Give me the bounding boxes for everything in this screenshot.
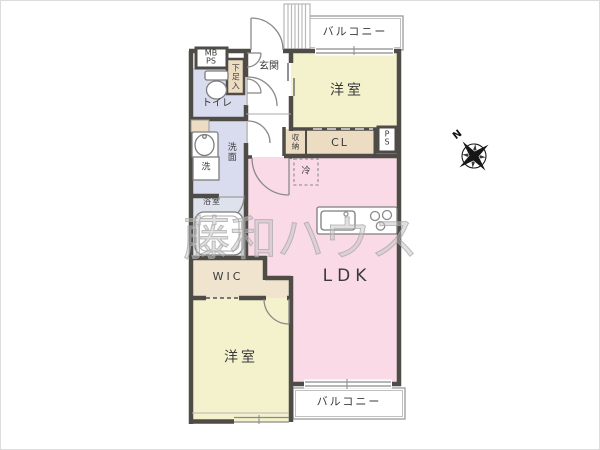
balcony-top-label: バルコニー [323, 26, 388, 38]
mbps-line2: PS [206, 57, 216, 66]
entrance-door [251, 18, 283, 50]
ps-label: P S [384, 131, 389, 148]
kitchen-sink [321, 211, 355, 230]
fridge-label: 冷 [301, 167, 310, 176]
toilet-fixture [205, 71, 228, 99]
compass-rose: N [439, 118, 503, 184]
genkan-label: 玄関 [259, 62, 279, 73]
bathtub-fixture [195, 212, 243, 255]
corridor-hatch [284, 4, 310, 49]
toilet-label: トイレ [202, 99, 232, 110]
compass-north-label: N [451, 128, 464, 142]
washbasin-fixture [192, 132, 218, 158]
storage-label: 収納 [291, 134, 299, 151]
balcony-bottom-label: バルコニー [317, 396, 382, 408]
kitchen-counter [317, 207, 397, 234]
floorplan-page: N バルコニー 洋室 玄関 MB PS 下足入 トイレ 洗面 洗 浴室 収納 C… [0, 0, 600, 450]
shoe-box-label: 下足入 [231, 64, 239, 91]
room-western-top-label: 洋室 [330, 84, 364, 99]
bathroom-label: 浴室 [203, 198, 221, 206]
mbps-label: MB PS [205, 50, 217, 67]
ps-line2: S [384, 138, 389, 147]
cl-label: CL [331, 137, 349, 149]
wic-label: WIC [213, 271, 244, 283]
laundry-label: 洗 [201, 163, 210, 172]
ldk-label: LDK [323, 268, 372, 286]
room-western-bottom-label: 洋室 [224, 351, 258, 366]
washroom-label: 洗面 [225, 142, 234, 162]
washroom-cabinet [191, 120, 209, 132]
floorplan-drawing: N [1, 1, 600, 450]
